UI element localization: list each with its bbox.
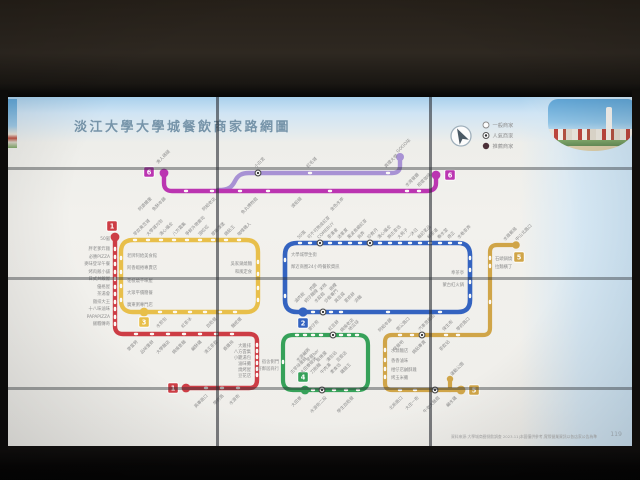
station-dash <box>438 311 442 314</box>
station-label: 魚酥本舖 <box>150 195 168 213</box>
station-dash <box>150 333 154 336</box>
bezel-horizontal-3 <box>8 387 632 390</box>
station-dash <box>114 322 117 326</box>
station-dash <box>311 334 315 337</box>
station-dash <box>120 270 123 274</box>
station-dash <box>303 334 307 337</box>
station-dash <box>114 255 117 259</box>
station-label: 英專路口 <box>192 392 209 409</box>
station-label: 滷味攤 <box>238 360 252 367</box>
station-dash <box>489 300 492 304</box>
station-label: 大庄一街 <box>403 394 421 412</box>
station-dash <box>384 367 387 371</box>
line-badge-number: 1 <box>110 222 115 230</box>
station-dash <box>489 256 492 260</box>
station-label: 品味蛋餅 <box>138 338 156 356</box>
station-dash <box>405 190 409 193</box>
route-line-6-magenta <box>164 174 436 191</box>
room-below-screen <box>0 446 640 480</box>
station-label: 中山北路口 <box>513 222 533 242</box>
station-label: 紅茶冰 <box>179 315 194 330</box>
station-dash <box>256 373 259 377</box>
station-dash <box>185 239 189 242</box>
station-label: 雞排大王 <box>93 298 111 305</box>
station-dash <box>266 190 270 193</box>
bezel-vertical-2 <box>429 97 432 446</box>
station-dash <box>398 242 402 245</box>
station-dash <box>355 334 359 337</box>
station-dash <box>159 239 163 242</box>
station-dash <box>410 334 414 337</box>
station-dash <box>184 190 188 193</box>
station-ring-dot <box>332 334 334 336</box>
station-dash <box>237 239 241 242</box>
station-label: 拉麵橫丁 <box>495 263 513 270</box>
station-label: 吳家鍋燒麵 <box>231 260 253 267</box>
station-dash <box>114 300 117 304</box>
station-dash <box>114 262 117 266</box>
station-dash <box>256 361 259 365</box>
station-label: 飯糰傳奇 <box>93 320 111 327</box>
station-dash <box>257 260 260 264</box>
station-label: 石頭鍋燒 <box>495 255 513 262</box>
station-dash <box>358 242 362 245</box>
station-dash <box>256 343 259 347</box>
station-dash <box>146 239 150 242</box>
station-ring-dot <box>369 242 371 244</box>
station-dash <box>338 242 342 245</box>
station-dash <box>408 242 412 245</box>
station-dash <box>233 311 237 314</box>
station-dash <box>114 285 117 289</box>
station-dash <box>469 294 472 298</box>
station-dash <box>398 334 402 337</box>
station-dash <box>489 264 492 268</box>
station-ring-dot <box>319 242 321 244</box>
bezel-horizontal-2 <box>8 277 632 280</box>
station-label: 米糕 <box>317 281 329 293</box>
station-dash <box>284 258 287 262</box>
station-dash <box>114 307 117 311</box>
station-dash <box>114 247 117 251</box>
station-dash <box>458 242 462 245</box>
station-label: 優格屋 <box>97 283 111 290</box>
station-dash <box>158 311 162 314</box>
station-label: 鍋貼專賣 <box>410 338 428 356</box>
route-line-3-yellow <box>121 240 258 312</box>
line-badge-number: 5 <box>517 253 522 261</box>
station-dash <box>319 334 323 337</box>
station-label: 八方雲集 <box>234 348 252 355</box>
station-label: 水源街二段 <box>308 394 329 415</box>
station-dash <box>284 294 287 298</box>
station-dash <box>386 311 390 314</box>
station-label: 豆花店 <box>238 372 252 379</box>
station-dash <box>133 239 137 242</box>
station-label: 大眾平價簡餐 <box>127 289 153 296</box>
station-terminus <box>111 233 120 242</box>
station-dash <box>257 272 260 276</box>
station-ring-dot <box>421 334 423 336</box>
station-dash <box>448 242 452 245</box>
station-label: 大學城學生街 <box>291 251 317 258</box>
station-dash <box>198 239 202 242</box>
station-label: GOGO站 <box>394 136 412 154</box>
station-dash <box>384 375 387 379</box>
station-label: 好鄰居商行 <box>258 365 280 372</box>
station-label: 廣東粥專門店 <box>127 301 153 308</box>
station-label: 阿香蝦捲專賣店 <box>127 264 158 271</box>
station-dash <box>224 239 228 242</box>
station-label: 魚丸博物館 <box>239 195 259 215</box>
station-label: 運動公園 <box>448 360 465 377</box>
station-label: 茶湯會 <box>97 290 111 297</box>
station-label: 學府路口 <box>454 315 471 332</box>
station-dash <box>328 242 332 245</box>
station-dash <box>114 315 117 319</box>
station-label: 北新路口 <box>387 394 404 411</box>
station-label: 水煎包 <box>154 315 169 330</box>
station-dash <box>120 284 123 288</box>
station-label: 50嵐 <box>295 228 307 240</box>
station-label: 烤玉米攤 <box>391 374 409 381</box>
station-dash <box>210 190 214 193</box>
compass-icon <box>451 126 471 146</box>
station-dash <box>384 348 387 352</box>
station-dash <box>311 311 315 314</box>
station-terminus <box>432 171 441 180</box>
page-number: 119 <box>610 431 622 438</box>
station-dash <box>418 242 422 245</box>
station-label: PAPAPIZZA <box>87 314 110 320</box>
station-dash <box>298 242 302 245</box>
room-left-of-screen <box>0 90 8 450</box>
station-label: 十八味滷味 <box>89 305 111 312</box>
station-label: 蒙古紅火鍋 <box>443 281 465 288</box>
room-right-of-screen <box>632 90 640 450</box>
station-dash <box>256 349 259 353</box>
station-dash <box>329 311 333 314</box>
station-dash <box>238 190 242 193</box>
station-label: 老牌阿給美食館 <box>127 252 157 259</box>
station-label: 阿給本舖 <box>376 316 394 334</box>
station-label: 鄰近商圈24小時餐飲資訊 <box>291 263 340 270</box>
station-dash <box>339 311 343 314</box>
station-dash <box>469 256 472 260</box>
station-dash <box>384 358 387 362</box>
station-label: 水源麵店 <box>391 347 409 354</box>
legend-label: 人氣商家 <box>493 131 514 139</box>
station-label: 宿舍側門 <box>262 358 279 365</box>
station-label: 香香滷味 <box>391 357 409 364</box>
station-dash <box>198 333 202 336</box>
station-label: 水巷茶弄 <box>455 223 473 241</box>
station-dash <box>308 242 312 245</box>
station-label: 胖老爹炸雞 <box>89 245 111 252</box>
station-dash <box>282 360 285 364</box>
station-dash <box>134 333 138 336</box>
station-dash <box>203 311 207 314</box>
station-label: 金色水岸 <box>328 195 346 213</box>
credit-line: 資料來源:大學城商圈餐飲調查 2023.11|本圖僅供參考,實際營業資訊以各店家… <box>451 434 597 439</box>
station-label: 大學麵店 <box>154 338 172 356</box>
station-dash <box>257 286 260 290</box>
station-dash <box>257 298 260 302</box>
legend-label: 推薦商家 <box>493 142 514 150</box>
station-label: 燒烤屋 <box>238 366 252 373</box>
station-label: 大田寮 <box>289 394 304 409</box>
station-label: 和風定食 <box>235 268 253 275</box>
station-label: 柑仔店鹹酥雞 <box>391 366 417 373</box>
station-dash <box>172 239 176 242</box>
station-label: 咖哩職人 <box>235 220 253 238</box>
station-dash <box>308 172 312 175</box>
station-dash <box>378 242 382 245</box>
station-dash <box>166 333 170 336</box>
station-label: 小籠湯包 <box>234 354 252 361</box>
station-dash <box>120 256 123 260</box>
station-dash <box>120 298 123 302</box>
station-dash <box>444 334 448 337</box>
station-label: 鄧公路口 <box>394 315 411 332</box>
station-label: 必勝PIZZA <box>89 253 110 260</box>
station-label: 麥味登早午餐 <box>84 260 110 267</box>
bezel-vertical-1 <box>216 97 219 446</box>
station-dash <box>173 311 177 314</box>
station-dash <box>114 292 117 296</box>
legend-ring-dot-center <box>485 134 487 136</box>
station-label: 鍋燒意麵 <box>170 338 188 356</box>
station-label: 麵疙瘩 <box>229 315 244 330</box>
station-label: 烤肉飯小舖 <box>89 268 111 275</box>
room-above-screen <box>0 0 640 97</box>
station-dash <box>114 270 117 274</box>
station-dash <box>182 333 186 336</box>
legend: 一般商家人氣商家推薦商家 <box>483 121 513 150</box>
line-badge-number: 2 <box>301 319 306 327</box>
line-badge-number: 3 <box>142 318 147 326</box>
station-dash <box>328 190 332 193</box>
legend-label: 一般商家 <box>493 121 514 129</box>
station-label: 漁人碼頭 <box>154 148 172 166</box>
legend-filled-circle-icon <box>483 143 489 149</box>
station-dash <box>469 268 472 272</box>
station-label: 汽車旅館前 <box>416 312 437 333</box>
station-dash <box>456 334 460 337</box>
station-dash <box>388 242 392 245</box>
station-label: 鹹水雞 <box>444 394 459 409</box>
station-dash <box>230 333 234 336</box>
station-label: 大雞排 <box>238 342 252 349</box>
station-label: 水源街 <box>227 392 242 407</box>
route-line-4-green <box>283 335 368 390</box>
station-label: 麥當勞 <box>125 338 139 352</box>
station-label: 渡船頭 <box>289 195 304 210</box>
station-label: 麥仔煎 <box>306 318 321 333</box>
station-dash <box>386 172 390 175</box>
station-terminus <box>140 308 149 317</box>
station-dash <box>211 239 215 242</box>
station-dash <box>417 190 421 193</box>
station-dash <box>347 334 351 337</box>
line-badge-number: 6 <box>448 171 453 179</box>
station-dash <box>348 242 352 245</box>
station-label: 奉茶亭 <box>451 269 465 276</box>
station-label: 學生自助餐 <box>335 394 356 415</box>
station-label: 50嵐 <box>100 235 110 242</box>
station-label: 茶飲站 <box>437 338 452 353</box>
station-dash <box>188 311 192 314</box>
station-dash <box>295 334 299 337</box>
station-dash <box>438 242 442 245</box>
station-dash <box>256 355 259 359</box>
station-label: 鹹酥雞 <box>189 338 204 353</box>
station-label: 保生街 <box>440 318 455 333</box>
legend-open-circle-icon <box>483 122 489 128</box>
bezel-horizontal-1 <box>8 167 632 170</box>
photo-of-video-wall: 淡江大學大學城餐飲商家路網圖 小白宮紅毛城真理大學GOGO站66漁人碼頭水灣餐廳… <box>0 0 640 480</box>
station-terminus <box>298 307 307 316</box>
station-ring-dot <box>322 311 324 313</box>
station-terminus <box>512 241 520 249</box>
station-dash <box>339 334 343 337</box>
station-ring-dot <box>257 172 259 174</box>
station-dash <box>469 280 472 284</box>
